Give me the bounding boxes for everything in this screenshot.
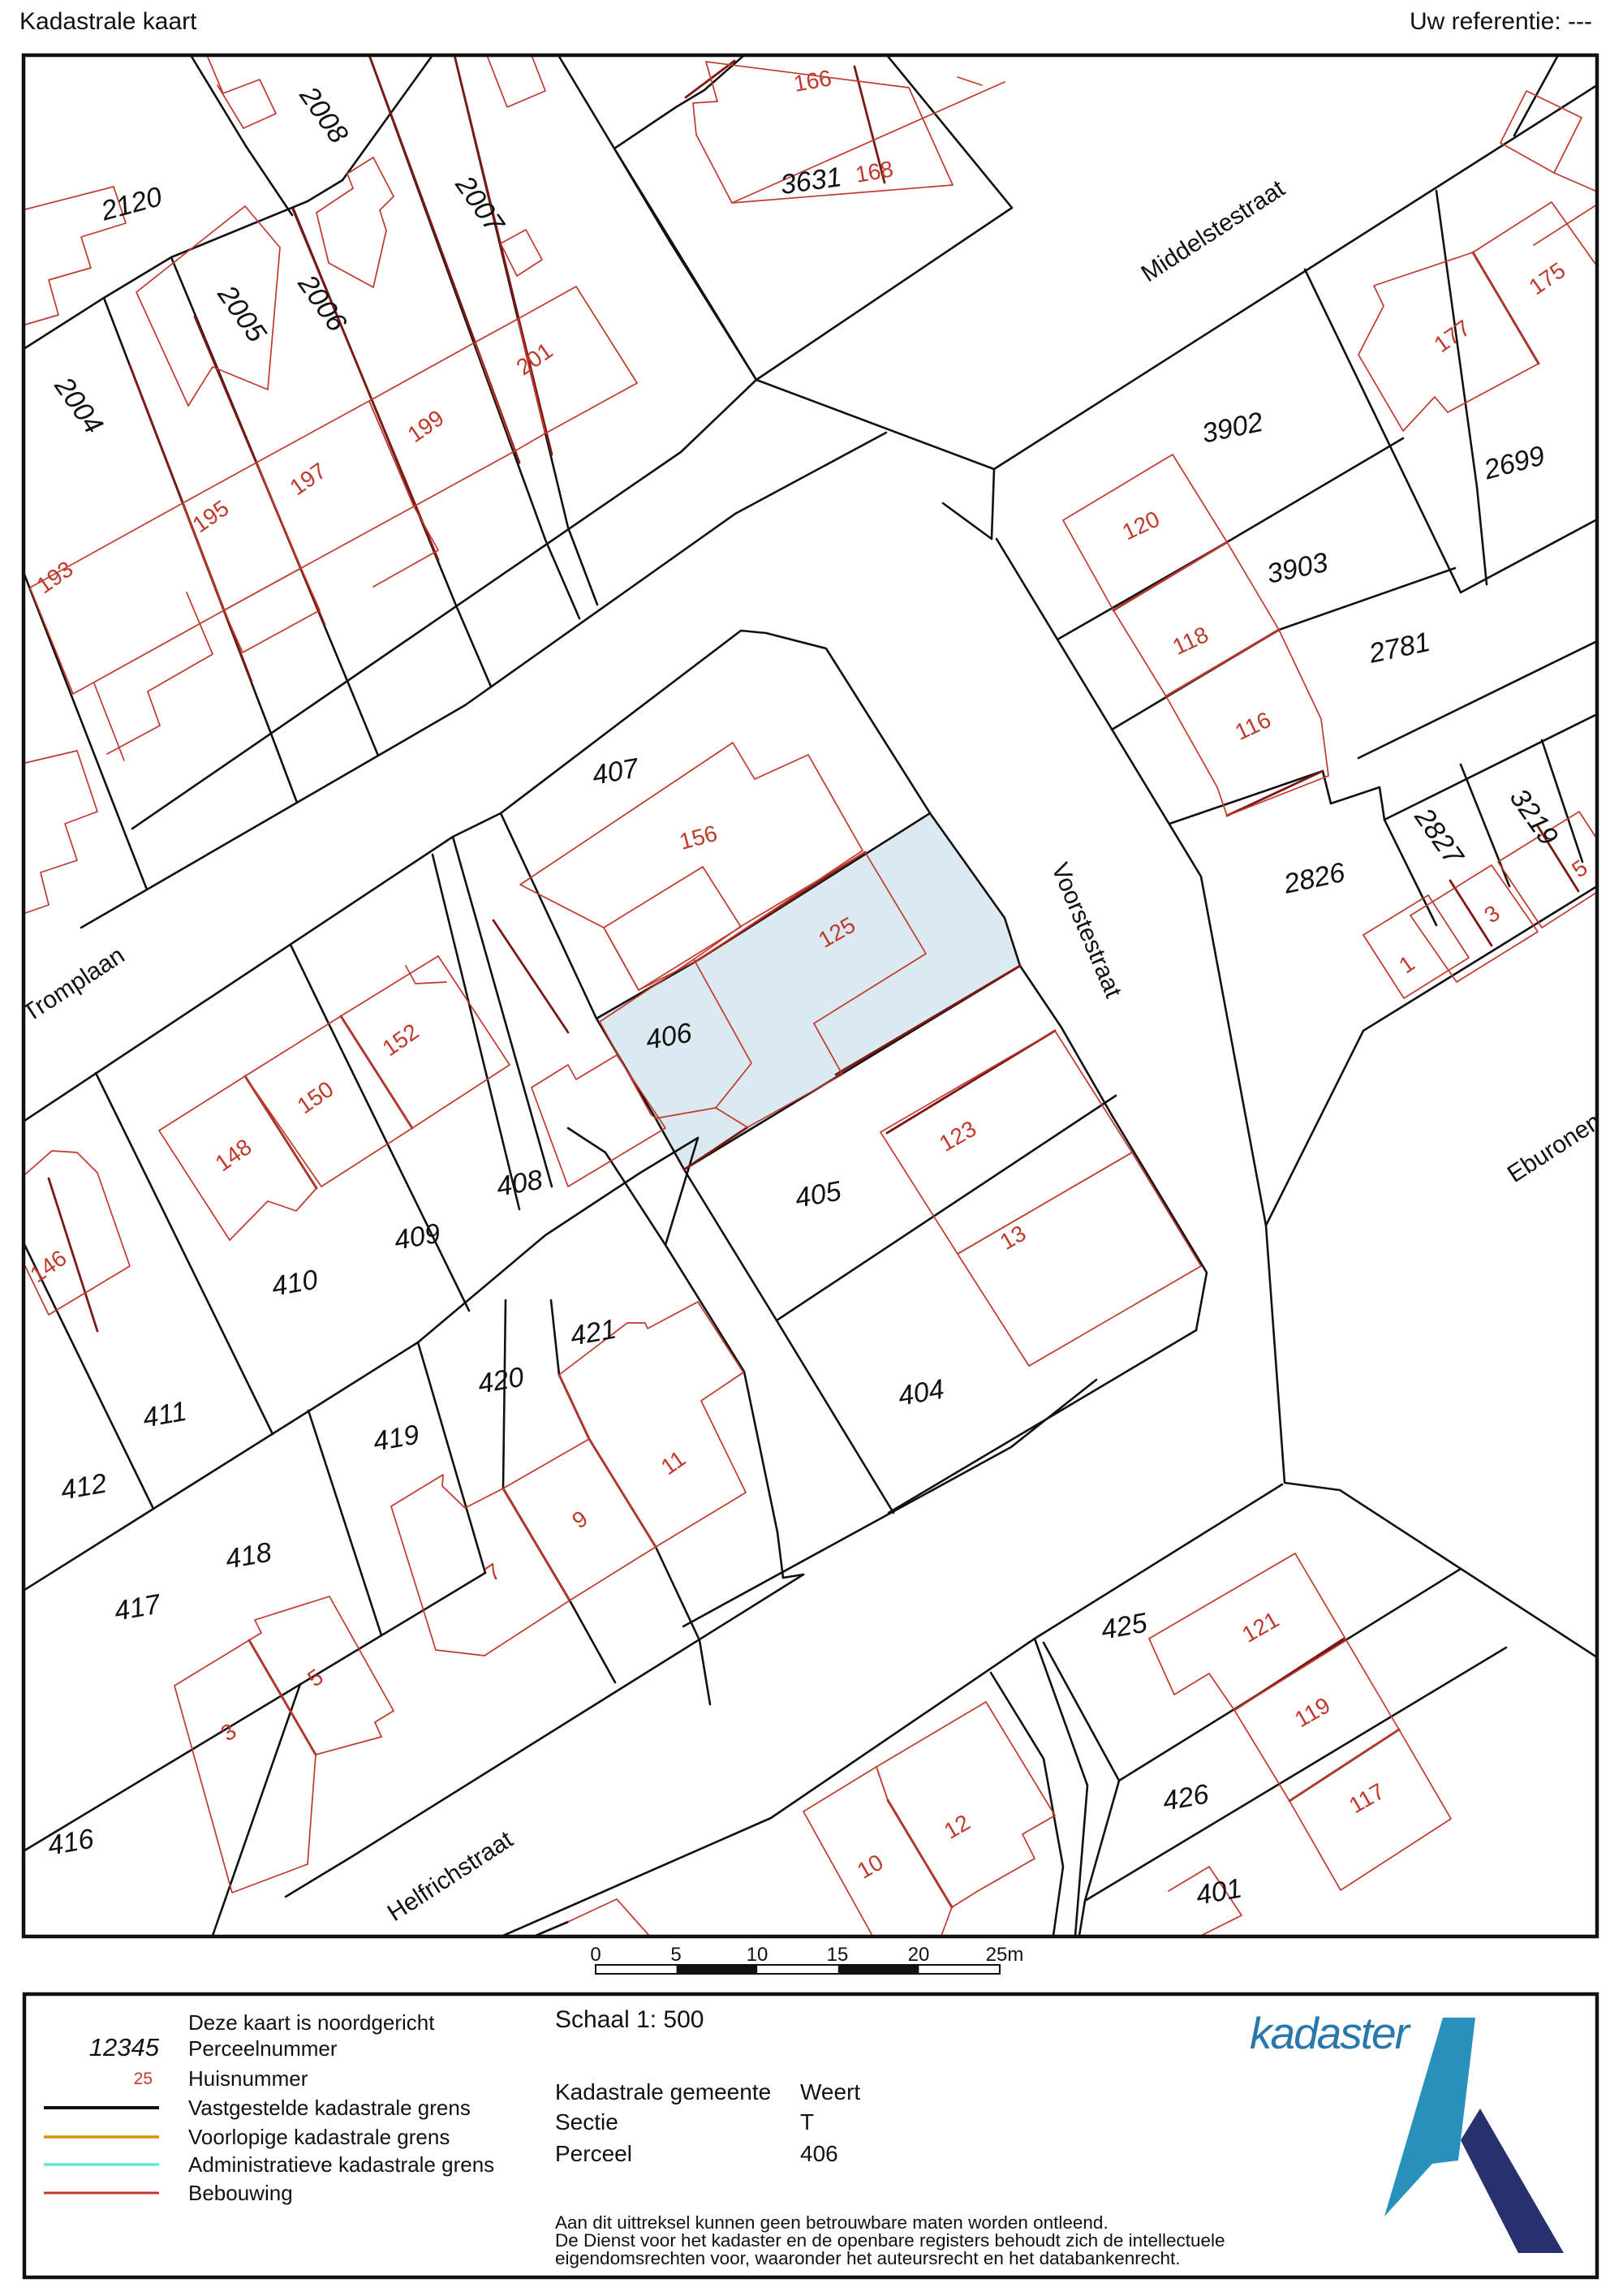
svg-text:417: 417 [112,1588,164,1626]
svg-text:2007: 2007 [449,170,510,239]
svg-text:117: 117 [1345,1778,1388,1818]
svg-text:148: 148 [211,1134,256,1176]
svg-text:408: 408 [494,1165,545,1203]
svg-text:kadaster: kadaster [1250,2008,1412,2058]
svg-text:409: 409 [392,1218,443,1256]
svg-text:121: 121 [1238,1607,1283,1648]
svg-text:2827: 2827 [1408,802,1470,871]
svg-text:Helfrichstraat: Helfrichstraat [383,1826,519,1927]
svg-text:Administratieve kadastrale gre: Administratieve kadastrale grens [188,2152,494,2177]
svg-text:118: 118 [1169,622,1212,660]
svg-text:3902: 3902 [1199,407,1266,450]
svg-text:2781: 2781 [1366,627,1433,670]
svg-text:2008: 2008 [293,80,354,149]
svg-text:175: 175 [1525,257,1570,299]
svg-text:2004: 2004 [48,371,109,440]
svg-text:150: 150 [293,1076,338,1118]
svg-text:412: 412 [58,1468,110,1506]
svg-text:10: 10 [853,1850,887,1884]
svg-text:Voorlopige kadastrale grens: Voorlopige kadastrale grens [188,2125,450,2149]
svg-text:Perceel: Perceel [555,2141,632,2166]
svg-text:119: 119 [1290,1692,1334,1732]
svg-text:Bebouwing: Bebouwing [188,2181,293,2205]
svg-text:Perceelnummer: Perceelnummer [188,2036,338,2061]
svg-text:404: 404 [896,1374,946,1412]
svg-text:15: 15 [827,1944,849,1966]
svg-text:12: 12 [940,1810,974,1844]
svg-text:Huisnummer: Huisnummer [188,2066,308,2091]
svg-text:420: 420 [476,1362,527,1400]
svg-text:Sectie: Sectie [555,2109,618,2134]
svg-text:156: 156 [677,821,720,855]
svg-text:425: 425 [1099,1608,1150,1646]
svg-text:410: 410 [269,1264,321,1303]
svg-text:Kadastrale kaart: Kadastrale kaart [19,8,197,35]
svg-text:9: 9 [567,1506,592,1533]
svg-text:Schaal 1: 500: Schaal 1: 500 [555,2006,704,2033]
svg-text:7: 7 [480,1558,506,1586]
svg-text:421: 421 [568,1314,618,1352]
svg-text:Kadastrale gemeente: Kadastrale gemeente [555,2079,771,2104]
svg-text:Voorstestraat: Voorstestraat [1046,859,1127,1002]
svg-text:13: 13 [996,1221,1030,1255]
svg-text:426: 426 [1160,1779,1212,1817]
svg-text:116: 116 [1231,707,1275,745]
svg-text:405: 405 [793,1176,844,1214]
svg-text:25m: 25m [986,1944,1024,1966]
svg-text:406: 406 [800,2141,838,2166]
svg-text:123: 123 [935,1116,980,1157]
svg-text:10: 10 [747,1944,768,1966]
svg-text:Tromplaan: Tromplaan [18,941,129,1027]
svg-text:416: 416 [45,1824,97,1862]
svg-text:3: 3 [1479,900,1505,928]
svg-text:199: 199 [403,405,449,447]
svg-text:12345: 12345 [89,2033,160,2061]
svg-text:20: 20 [908,1944,930,1966]
svg-text:197: 197 [286,458,331,500]
svg-text:177: 177 [1430,315,1475,357]
svg-text:0: 0 [590,1944,601,1966]
svg-text:120: 120 [1118,506,1163,545]
svg-text:418: 418 [223,1537,274,1575]
svg-text:11: 11 [657,1445,691,1480]
svg-text:3903: 3903 [1264,547,1331,590]
svg-text:3219: 3219 [1504,783,1565,851]
svg-text:Eburonenstraat: Eburonenstraat [1503,1075,1623,1188]
svg-text:25: 25 [134,2070,153,2088]
svg-text:407: 407 [590,752,642,790]
svg-text:168: 168 [854,156,895,187]
svg-text:152: 152 [378,1019,424,1061]
svg-text:5: 5 [670,1944,681,1966]
svg-text:5: 5 [303,1664,328,1691]
svg-text:201: 201 [512,338,558,380]
svg-text:T: T [800,2109,814,2134]
svg-text:eigendomsrechten voor, waarond: eigendomsrechten voor, waaronder het aut… [555,2248,1181,2268]
svg-text:193: 193 [32,556,78,598]
svg-text:Weert: Weert [800,2079,860,2104]
svg-text:411: 411 [140,1396,189,1434]
svg-text:Deze kaart is noordgericht: Deze kaart is noordgericht [188,2010,435,2035]
svg-text:Vastgestelde kadastrale grens: Vastgestelde kadastrale grens [188,2096,471,2120]
svg-text:Middelstestraat: Middelstestraat [1137,174,1290,287]
svg-text:419: 419 [371,1419,422,1458]
svg-text:Uw referentie: ---: Uw referentie: --- [1410,8,1592,35]
svg-text:2006: 2006 [291,269,352,338]
svg-text:2005: 2005 [211,279,272,348]
svg-text:166: 166 [792,65,833,97]
svg-text:2826: 2826 [1281,857,1348,900]
svg-text:2699: 2699 [1480,440,1548,486]
svg-text:1: 1 [1394,950,1419,978]
svg-text:401: 401 [1194,1873,1244,1911]
